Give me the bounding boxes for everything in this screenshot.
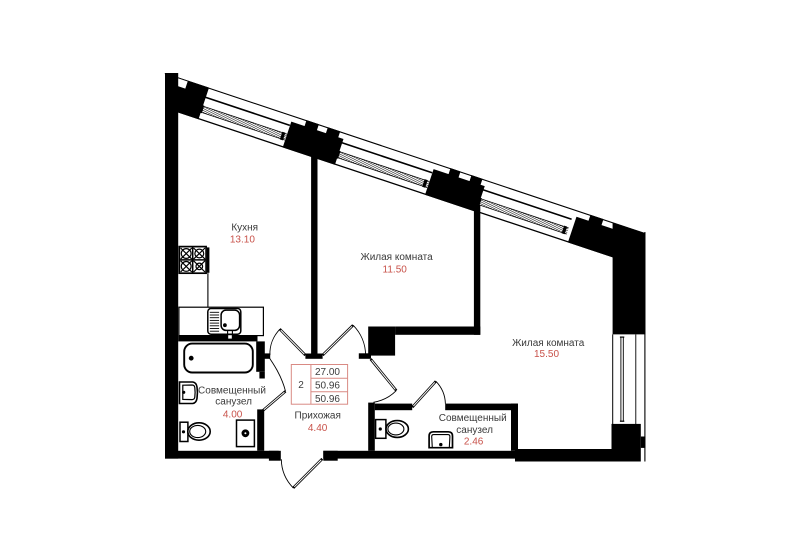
svg-text:санузел: санузел bbox=[215, 396, 252, 407]
svg-text:Жилая комната: Жилая комната bbox=[512, 338, 585, 349]
svg-text:Совмещенный: Совмещенный bbox=[198, 385, 266, 396]
svg-text:4.40: 4.40 bbox=[308, 423, 328, 434]
svg-text:Прихожая: Прихожая bbox=[295, 411, 341, 422]
svg-text:Совмещенный: Совмещенный bbox=[439, 413, 507, 424]
svg-text:Жилая комната: Жилая комната bbox=[360, 252, 433, 263]
svg-text:50.96: 50.96 bbox=[315, 394, 340, 405]
svg-text:санузел: санузел bbox=[456, 425, 493, 436]
svg-text:13.10: 13.10 bbox=[230, 234, 255, 245]
svg-text:50.96: 50.96 bbox=[315, 381, 340, 392]
svg-text:2: 2 bbox=[298, 380, 304, 391]
svg-text:15.50: 15.50 bbox=[534, 349, 559, 360]
svg-text:Кухня: Кухня bbox=[231, 223, 258, 234]
svg-text:4.00: 4.00 bbox=[223, 409, 243, 420]
svg-text:11.50: 11.50 bbox=[383, 264, 408, 275]
svg-text:27.00: 27.00 bbox=[315, 367, 340, 378]
svg-text:2.46: 2.46 bbox=[464, 437, 484, 448]
